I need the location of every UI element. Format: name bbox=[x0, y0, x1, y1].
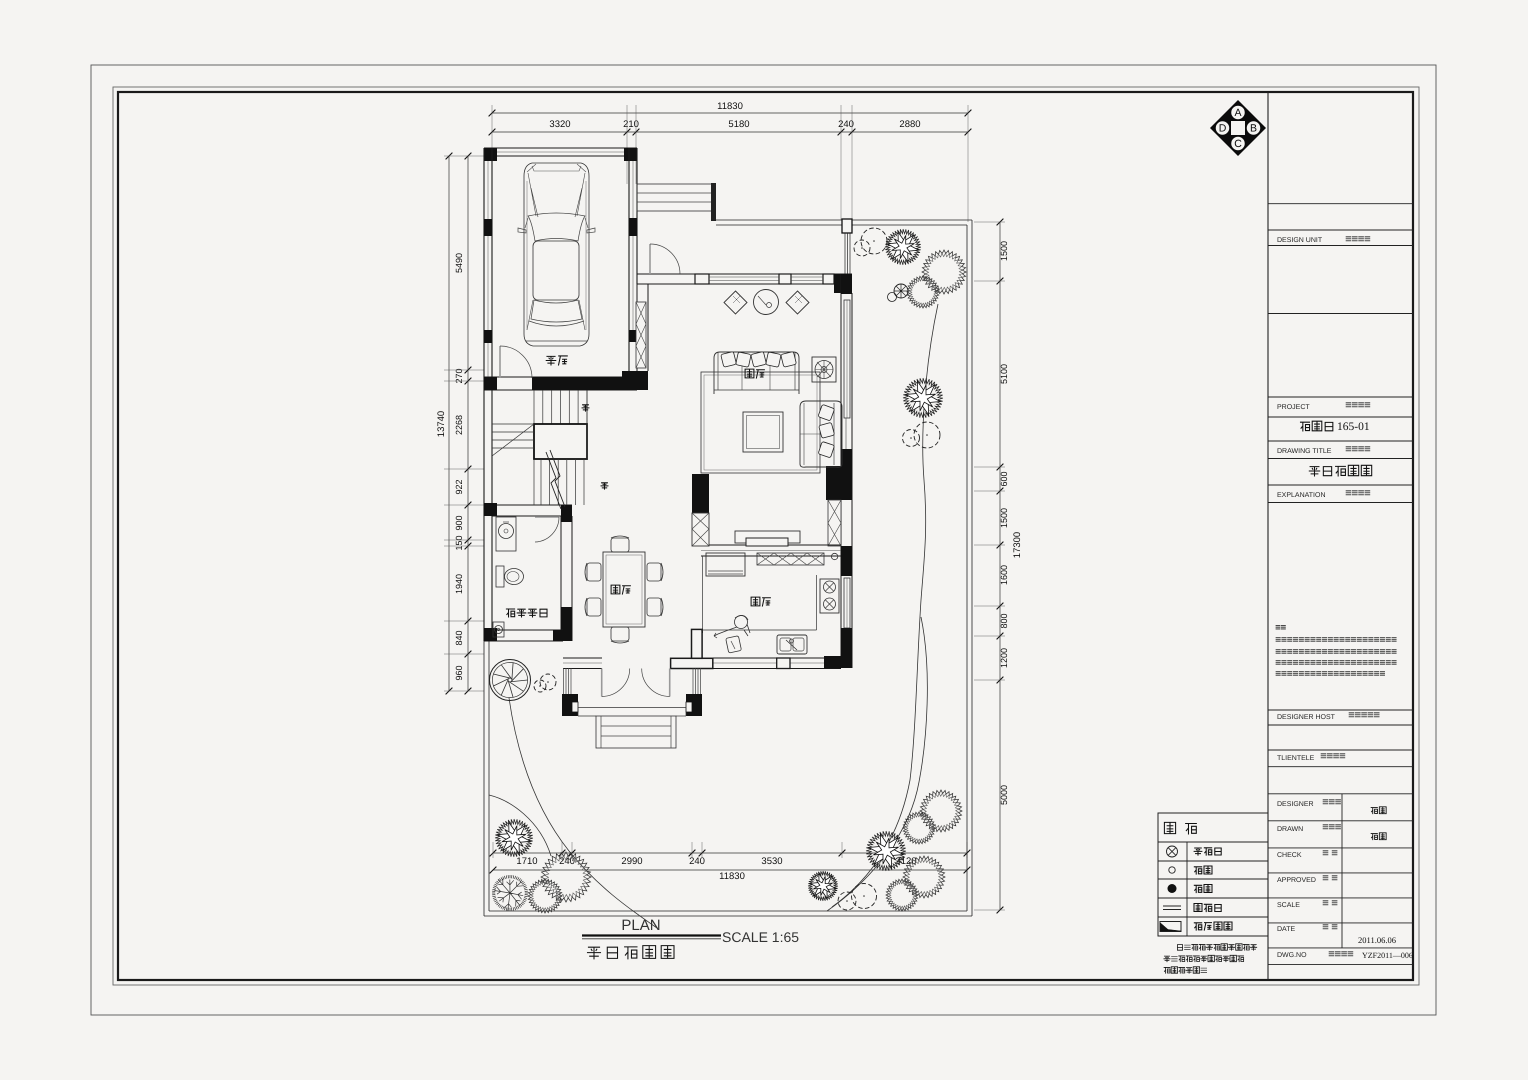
svg-text:2990: 2990 bbox=[621, 856, 642, 867]
svg-text:1940: 1940 bbox=[454, 574, 464, 594]
svg-text:APPROVED: APPROVED bbox=[1277, 877, 1316, 884]
svg-text:11830: 11830 bbox=[719, 871, 745, 882]
svg-text:800: 800 bbox=[999, 613, 1009, 628]
svg-text:DATE: DATE bbox=[1277, 926, 1295, 933]
svg-text:SCALE: SCALE bbox=[1277, 902, 1300, 909]
svg-text:C: C bbox=[1234, 138, 1242, 150]
svg-text:SCALE 1:65: SCALE 1:65 bbox=[722, 929, 799, 945]
svg-text:3530: 3530 bbox=[761, 856, 782, 867]
svg-text:DRAWN: DRAWN bbox=[1277, 826, 1303, 833]
svg-text:1710: 1710 bbox=[516, 856, 537, 867]
svg-text:11830: 11830 bbox=[717, 101, 743, 112]
svg-text:270: 270 bbox=[454, 368, 464, 383]
svg-text:DESIGN UNIT: DESIGN UNIT bbox=[1277, 237, 1323, 244]
svg-text:D: D bbox=[1219, 123, 1227, 135]
svg-text:240: 240 bbox=[689, 856, 705, 867]
svg-text:5490: 5490 bbox=[454, 253, 464, 273]
svg-text:YZF2011—006: YZF2011—006 bbox=[1362, 951, 1413, 960]
svg-text:3320: 3320 bbox=[549, 119, 570, 130]
svg-text:2011.06.06: 2011.06.06 bbox=[1358, 935, 1396, 945]
svg-text:PLAN: PLAN bbox=[621, 917, 660, 934]
svg-text:240: 240 bbox=[559, 856, 575, 867]
svg-text:DRAWING TITLE: DRAWING TITLE bbox=[1277, 448, 1332, 455]
svg-text:1500: 1500 bbox=[999, 508, 1009, 528]
svg-text:900: 900 bbox=[454, 515, 464, 530]
svg-text:922: 922 bbox=[454, 479, 464, 494]
svg-text:165-01: 165-01 bbox=[1337, 421, 1370, 433]
svg-text:600: 600 bbox=[999, 471, 1009, 486]
svg-text:240: 240 bbox=[838, 119, 854, 130]
svg-text:13740: 13740 bbox=[436, 411, 447, 437]
svg-text:2268: 2268 bbox=[454, 415, 464, 435]
svg-text:5180: 5180 bbox=[728, 119, 749, 130]
svg-text:1600: 1600 bbox=[999, 565, 1009, 585]
svg-text:DESIGNER: DESIGNER bbox=[1277, 801, 1314, 808]
svg-text:17300: 17300 bbox=[1012, 532, 1023, 558]
svg-text:840: 840 bbox=[454, 630, 464, 645]
svg-text:5000: 5000 bbox=[999, 785, 1009, 805]
svg-text:PROJECT: PROJECT bbox=[1277, 404, 1310, 411]
svg-text:CHECK: CHECK bbox=[1277, 852, 1302, 859]
svg-text:B: B bbox=[1250, 123, 1257, 135]
svg-text:960: 960 bbox=[454, 665, 464, 680]
svg-text:1200: 1200 bbox=[999, 648, 1009, 668]
svg-text:EXPLANATION: EXPLANATION bbox=[1277, 492, 1326, 499]
svg-text:2880: 2880 bbox=[899, 119, 920, 130]
svg-text:DESIGNER HOST: DESIGNER HOST bbox=[1277, 714, 1336, 721]
svg-text:DWG.NO: DWG.NO bbox=[1277, 952, 1307, 959]
svg-text:1500: 1500 bbox=[999, 241, 1009, 261]
svg-text:150: 150 bbox=[454, 535, 464, 550]
svg-text:210: 210 bbox=[623, 119, 639, 130]
svg-text:TLIENTELE: TLIENTELE bbox=[1277, 755, 1315, 762]
svg-text:A: A bbox=[1234, 107, 1241, 119]
svg-text:5100: 5100 bbox=[999, 364, 1009, 384]
